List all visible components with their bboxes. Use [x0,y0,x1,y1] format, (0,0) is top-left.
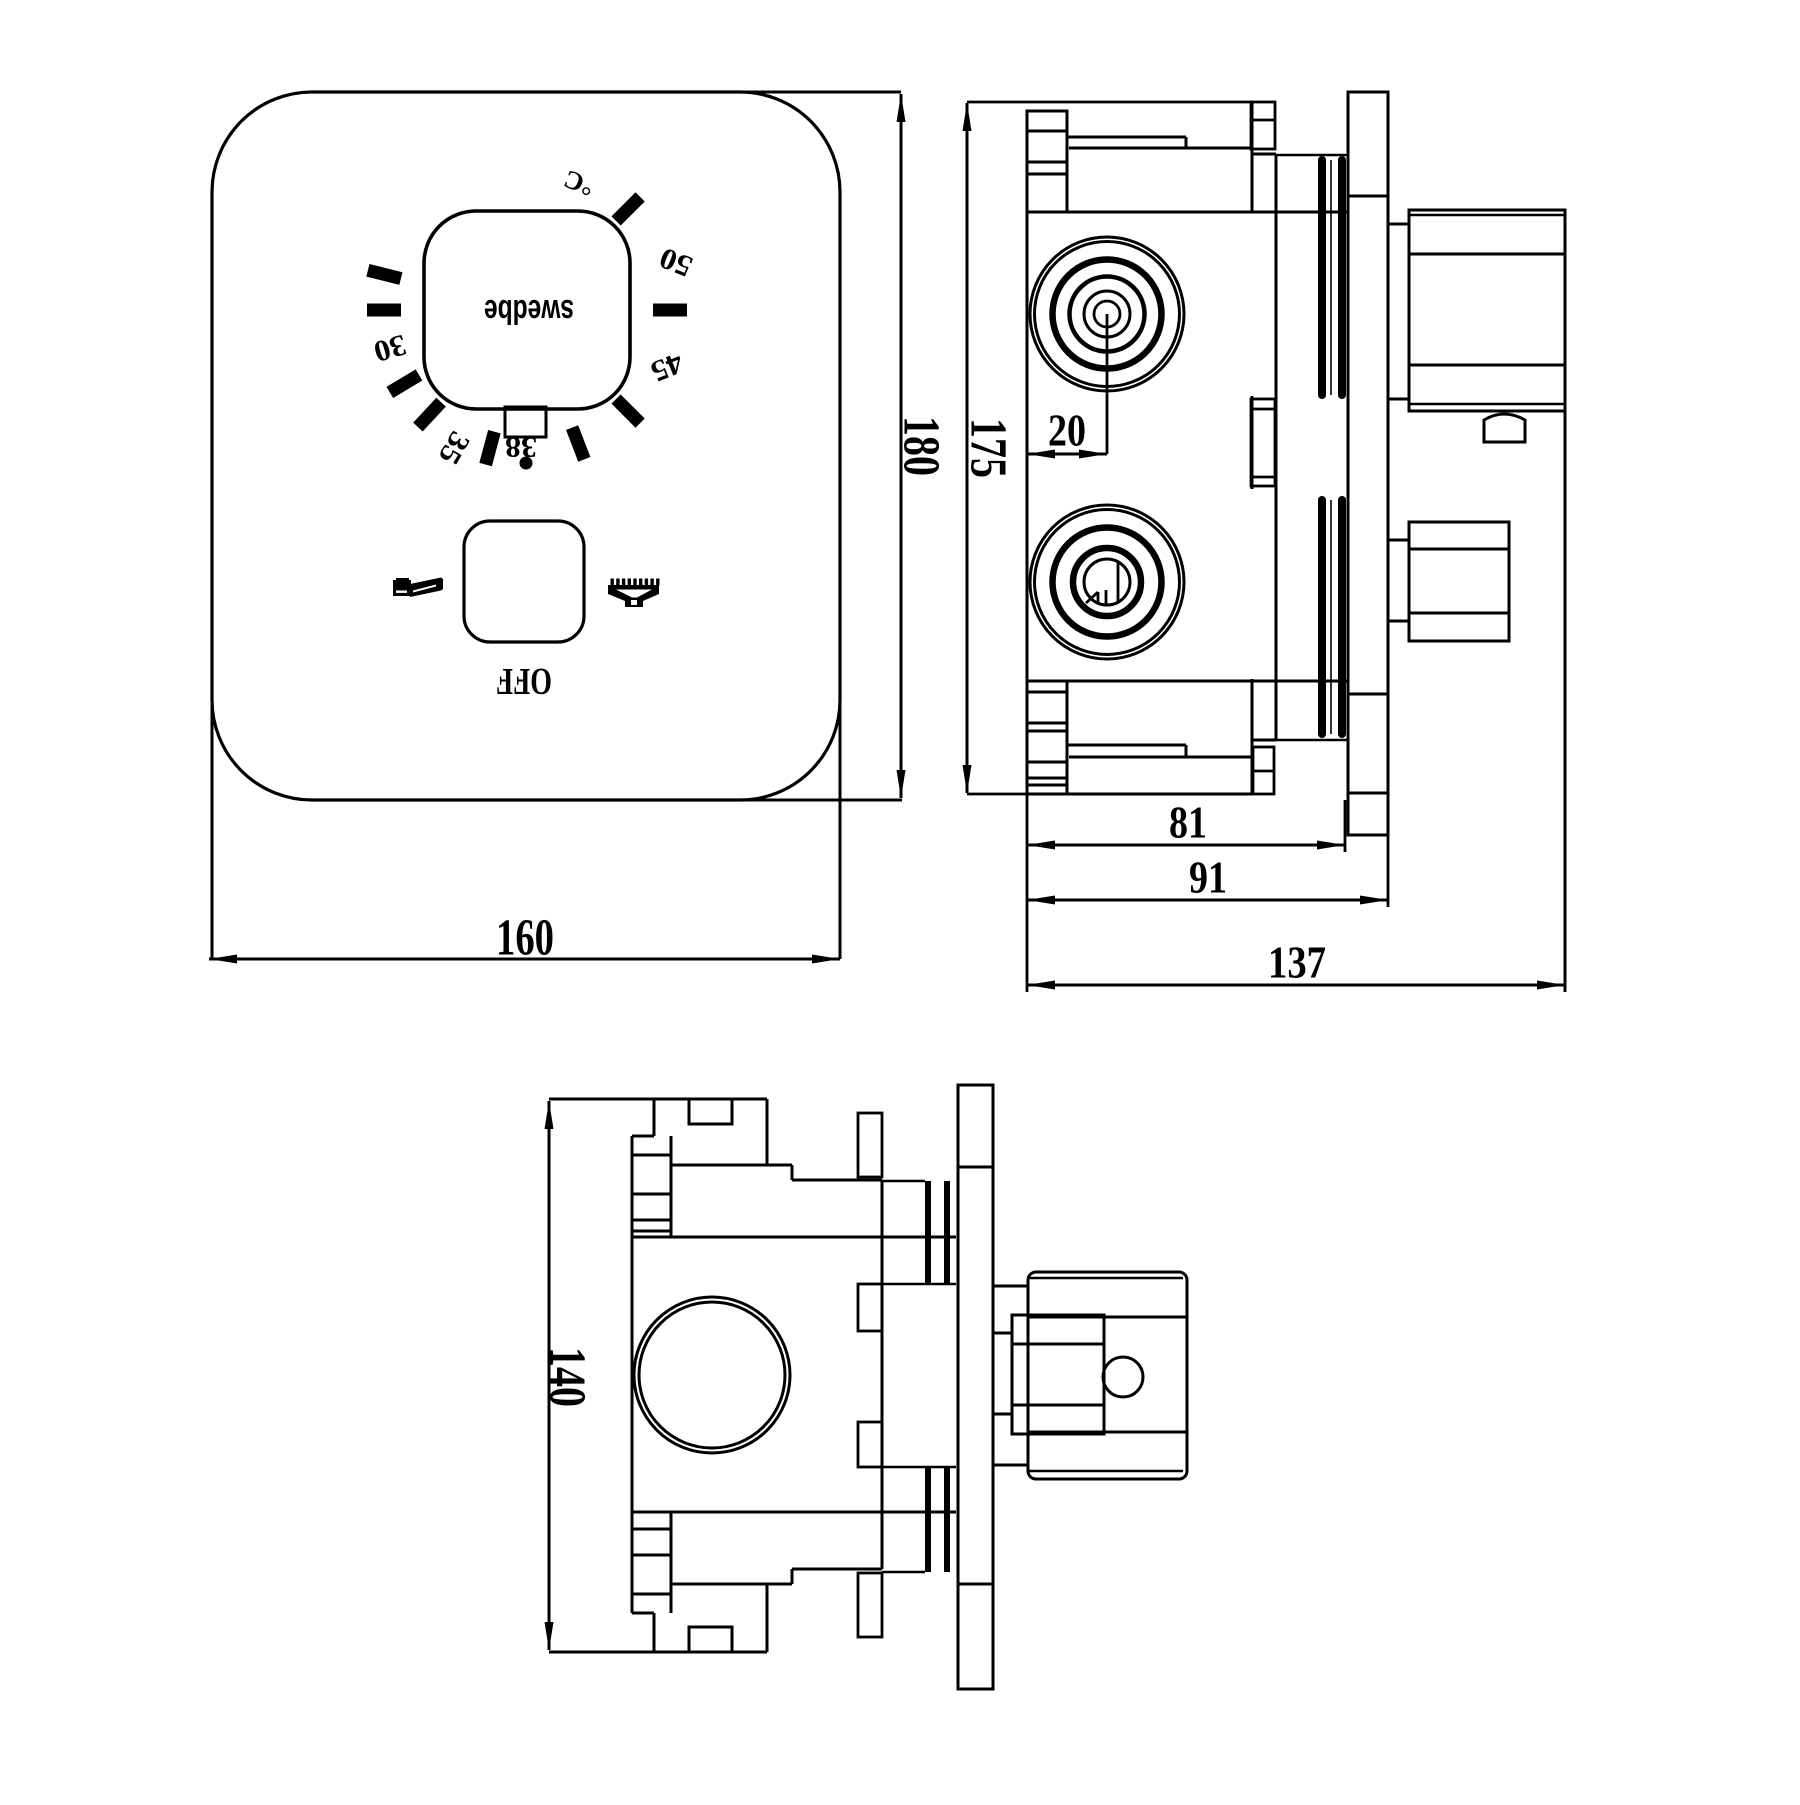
svg-text:140: 140 [539,1347,596,1407]
svg-text:81: 81 [1169,797,1207,848]
svg-text:swedbe: swedbe [484,292,574,330]
svg-text:160: 160 [496,910,554,967]
svg-text:20: 20 [1048,405,1086,456]
svg-text:OFF: OFF [496,660,552,702]
svg-text:175: 175 [960,418,1017,478]
svg-text:91: 91 [1189,852,1227,903]
svg-text:38: 38 [505,431,537,464]
svg-text:180: 180 [893,416,950,476]
svg-text:137: 137 [1268,937,1326,988]
